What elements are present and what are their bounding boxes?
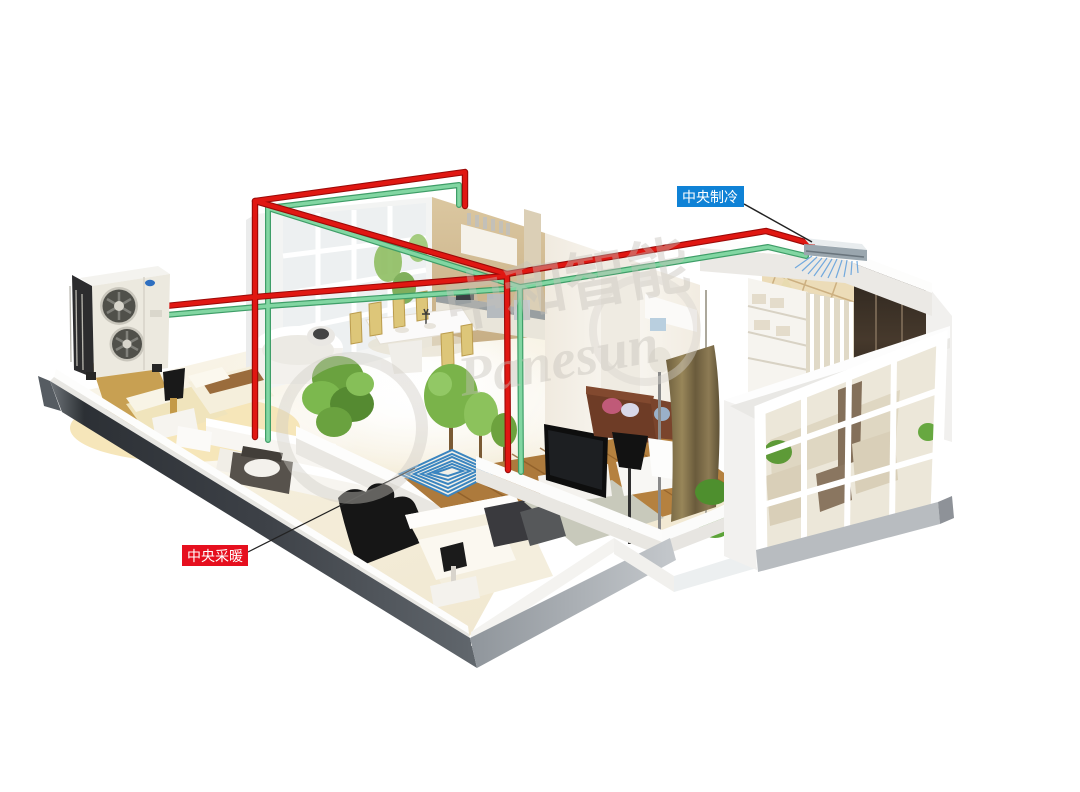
svg-text:中央制冷: 中央制冷	[682, 189, 738, 205]
svg-text:中央采暖: 中央采暖	[187, 548, 243, 564]
